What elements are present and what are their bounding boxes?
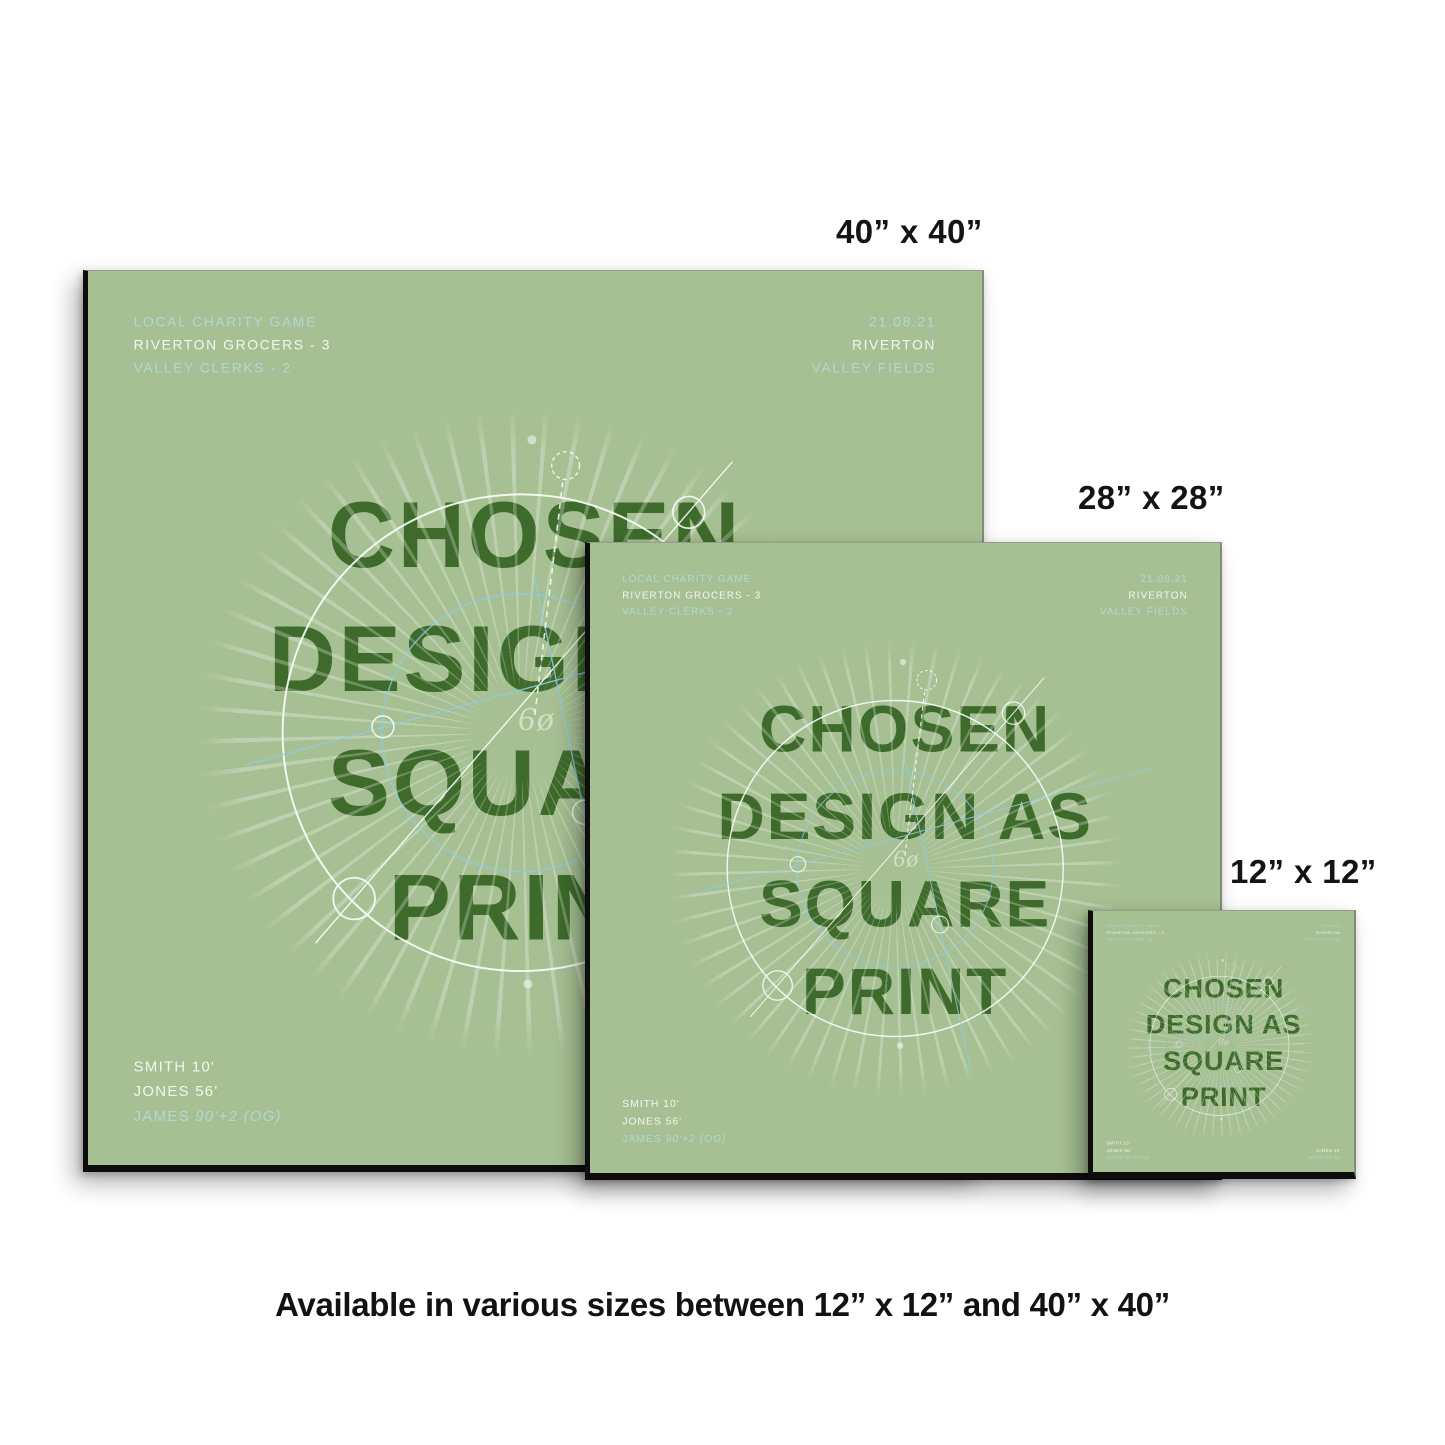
match-date: 21.08.21 — [812, 311, 936, 334]
match-town: RIVERTON — [1304, 929, 1340, 936]
sunburst-rays-graphic — [1124, 950, 1315, 1141]
home-team-score: RIVERTON GROCERS - 3 — [622, 587, 761, 603]
match-date: 21.08.21 — [1100, 571, 1188, 587]
match-date: 21.08.21 — [1304, 923, 1340, 930]
match-info-block: LOCAL CHARITY GAME RIVERTON GROCERS - 3 … — [622, 571, 761, 619]
away-team-score: VALLEY CLERKS - 2 — [1106, 936, 1164, 943]
sunburst-rays-graphic — [664, 638, 1126, 1100]
scorer: SMITH 10' — [134, 1054, 282, 1079]
match-meta-block: 21.08.21 RIVERTON VALLEY FIELDS — [812, 311, 936, 380]
size-label-28x28: 28” x 28” — [1078, 479, 1225, 517]
competition-label: LOCAL CHARITY GAME — [622, 571, 761, 587]
home-scorers-block: SMITH 10' JONES 56' JAMES 90'+2 (OG) — [622, 1095, 726, 1148]
scorer: JAMES 90'+2 (OG) — [134, 1104, 282, 1129]
match-meta-block: 21.08.21 RIVERTON VALLEY FIELDS — [1100, 571, 1188, 619]
scorer: JAMES 90'+2 (OG) — [1106, 1154, 1149, 1161]
match-venue: VALLEY FIELDS — [1304, 936, 1340, 943]
scorer: JONES 56' — [1106, 1147, 1149, 1154]
scorer: JONES 56' — [134, 1079, 282, 1104]
home-team-score: RIVERTON GROCERS - 3 — [134, 334, 331, 357]
size-label-12x12: 12” x 12” — [1230, 853, 1377, 891]
scorer: JAMES 90'+2 (OG) — [622, 1130, 726, 1148]
match-meta-block: 21.08.21 RIVERTON VALLEY FIELDS — [1304, 923, 1340, 943]
match-info-block: LOCAL CHARITY GAME RIVERTON GROCERS - 3 … — [134, 311, 331, 380]
match-info-block: LOCAL CHARITY GAME RIVERTON GROCERS - 3 … — [1106, 923, 1164, 943]
competition-label: LOCAL CHARITY GAME — [1106, 923, 1164, 930]
size-label-40x40: 40” x 40” — [836, 213, 983, 251]
scorer: JAMES 40' — [1308, 1147, 1341, 1154]
away-scorers-block: JAMES 40' WEBSTER 65' — [1308, 1147, 1341, 1162]
home-scorers-block: SMITH 10' JONES 56' JAMES 90'+2 (OG) — [1106, 1140, 1149, 1162]
availability-caption: Available in various sizes between 12” x… — [0, 1286, 1445, 1324]
match-venue: VALLEY FIELDS — [1100, 603, 1188, 619]
match-town: RIVERTON — [812, 334, 936, 357]
scorer: SMITH 10' — [622, 1095, 726, 1113]
scorer: WEBSTER 65' — [1308, 1154, 1341, 1161]
away-team-score: VALLEY CLERKS - 2 — [622, 603, 761, 619]
poster-artwork: CHOSEN DESIGN AS SQUARE PRINT — [1093, 911, 1354, 1172]
scorer: SMITH 10' — [1106, 1140, 1149, 1147]
home-scorers-block: SMITH 10' JONES 56' JAMES 90'+2 (OG) — [134, 1054, 282, 1128]
competition-label: LOCAL CHARITY GAME — [134, 311, 331, 334]
match-town: RIVERTON — [1100, 587, 1188, 603]
match-venue: VALLEY FIELDS — [812, 356, 936, 379]
scorer: JONES 56' — [622, 1113, 726, 1131]
away-team-score: VALLEY CLERKS - 2 — [134, 356, 331, 379]
poster-12x12: CHOSEN DESIGN AS SQUARE PRINT — [1088, 910, 1356, 1179]
home-team-score: RIVERTON GROCERS - 3 — [1106, 929, 1164, 936]
